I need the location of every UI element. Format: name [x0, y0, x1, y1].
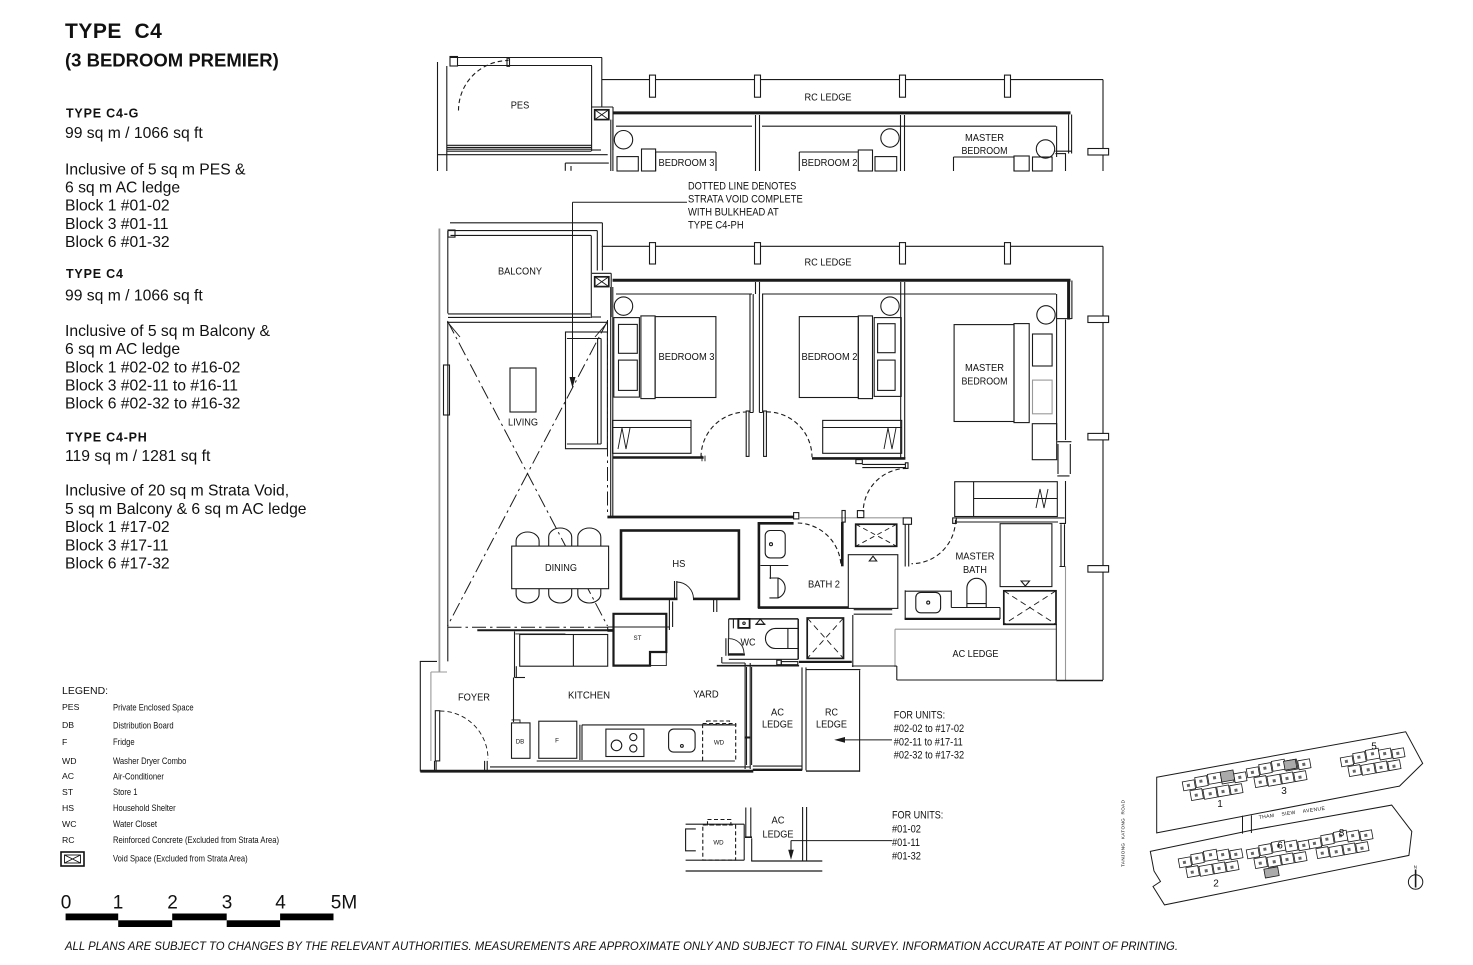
svg-text:Void Space (Excluded from Stra: Void Space (Excluded from Strata Area) [113, 854, 248, 865]
svg-text:Private Enclosed Space: Private Enclosed Space [113, 703, 194, 714]
svg-text:Inclusive of 20 sq m Strata Vo: Inclusive of 20 sq m Strata Void, [65, 483, 289, 500]
svg-text:5M: 5M [331, 893, 357, 914]
svg-text:BEDROOM: BEDROOM [962, 377, 1008, 388]
svg-text:TYPE C4: TYPE C4 [66, 267, 124, 281]
svg-text:0: 0 [61, 893, 72, 914]
svg-text:TYPE C4-PH: TYPE C4-PH [688, 220, 744, 232]
svg-text:AC: AC [62, 771, 74, 781]
svg-text:YARD: YARD [693, 690, 719, 701]
svg-text:AC LEDGE: AC LEDGE [953, 649, 999, 660]
svg-text:LEDGE: LEDGE [816, 720, 847, 731]
svg-text:#02-32 to #17-32: #02-32 to #17-32 [894, 750, 964, 762]
svg-text:Inclusive of 5 sq m PES &: Inclusive of 5 sq m PES & [65, 161, 246, 178]
svg-text:LEDGE: LEDGE [762, 720, 793, 731]
svg-text:99 sq m / 1066 sq ft: 99 sq m / 1066 sq ft [65, 288, 203, 305]
svg-text:WC: WC [741, 638, 756, 649]
svg-text:ST: ST [634, 635, 642, 642]
svg-text:WITH BULKHEAD AT: WITH BULKHEAD AT [688, 207, 779, 219]
svg-text:FOR UNITS:: FOR UNITS: [892, 810, 943, 822]
svg-text:F: F [555, 738, 559, 745]
svg-text:Fridge: Fridge [113, 737, 135, 748]
svg-text:AC: AC [772, 816, 785, 827]
svg-text:BEDROOM 3: BEDROOM 3 [659, 352, 715, 363]
svg-text:1: 1 [113, 893, 124, 914]
svg-text:MASTER: MASTER [956, 552, 995, 563]
svg-text:AC: AC [771, 708, 784, 719]
svg-text:(3 BEDROOM PREMIER): (3 BEDROOM PREMIER) [65, 50, 279, 71]
svg-text:TYPE C4: TYPE C4 [65, 20, 162, 43]
svg-text:5: 5 [1371, 742, 1377, 753]
svg-text:ST: ST [62, 787, 74, 797]
svg-text:ALL PLANS ARE SUBJECT TO CHANG: ALL PLANS ARE SUBJECT TO CHANGES BY THE … [64, 939, 1178, 953]
svg-text:1: 1 [1217, 799, 1223, 810]
svg-text:Block 6 #02-32 to #16-32: Block 6 #02-32 to #16-32 [65, 396, 240, 413]
svg-text:RC LEDGE: RC LEDGE [805, 93, 852, 104]
svg-text:DOTTED LINE DENOTES: DOTTED LINE DENOTES [688, 181, 796, 193]
svg-text:FOR UNITS:: FOR UNITS: [894, 710, 945, 722]
svg-text:TYPE C4-G: TYPE C4-G [66, 107, 139, 121]
svg-text:WC: WC [62, 819, 76, 829]
svg-text:BEDROOM 3: BEDROOM 3 [659, 158, 715, 169]
svg-text:Washer Dryer Combo: Washer Dryer Combo [113, 756, 186, 767]
svg-text:DB: DB [516, 739, 525, 746]
svg-text:PES: PES [62, 702, 80, 712]
svg-text:5 sq m Balcony & 6 sq m AC led: 5 sq m Balcony & 6 sq m AC ledge [65, 501, 307, 518]
svg-text:MASTER: MASTER [965, 133, 1004, 144]
svg-text:6 sq m AC ledge: 6 sq m AC ledge [65, 341, 180, 358]
svg-text:BEDROOM 2: BEDROOM 2 [802, 158, 858, 169]
svg-text:4: 4 [275, 893, 286, 914]
svg-text:PES: PES [511, 101, 530, 112]
svg-text:N: N [1414, 865, 1418, 870]
svg-text:Block 3 #01-11: Block 3 #01-11 [65, 216, 169, 233]
svg-text:Block 6 #01-32: Block 6 #01-32 [65, 234, 170, 251]
svg-text:#01-02: #01-02 [892, 824, 921, 836]
svg-text:Household Shelter: Household Shelter [113, 803, 176, 814]
svg-text:RC: RC [62, 835, 75, 845]
svg-text:MASTER: MASTER [965, 363, 1004, 374]
svg-text:Water Closet: Water Closet [113, 819, 157, 830]
svg-text:LEDGE: LEDGE [763, 830, 794, 841]
svg-text:KITCHEN: KITCHEN [568, 691, 610, 702]
svg-text:Block 6 #17-32: Block 6 #17-32 [65, 556, 170, 573]
svg-text:STRATA VOID COMPLETE: STRATA VOID COMPLETE [688, 194, 803, 206]
svg-text:TANJONG KATONG ROAD: TANJONG KATONG ROAD [1121, 799, 1126, 867]
svg-text:FOYER: FOYER [458, 693, 490, 704]
svg-text:DB: DB [62, 720, 74, 730]
svg-text:#02-11 to #17-11: #02-11 to #17-11 [894, 736, 963, 748]
svg-text:LIVING: LIVING [508, 418, 538, 429]
svg-text:3: 3 [1281, 786, 1287, 797]
svg-text:BEDROOM 2: BEDROOM 2 [802, 352, 858, 363]
svg-text:RC: RC [825, 708, 838, 719]
svg-text:BATH 2: BATH 2 [808, 580, 840, 591]
svg-text:WD: WD [62, 756, 76, 766]
svg-text:119 sq m / 1281 sq ft: 119 sq m / 1281 sq ft [65, 448, 211, 465]
svg-text:6 sq m AC ledge: 6 sq m AC ledge [65, 180, 180, 197]
svg-text:BEDROOM: BEDROOM [962, 146, 1008, 157]
svg-text:Inclusive of 5 sq m Balcony &: Inclusive of 5 sq m Balcony & [65, 323, 270, 340]
svg-text:WD: WD [714, 740, 725, 747]
svg-text:Reinforced Concrete (Excluded: Reinforced Concrete (Excluded from Strat… [113, 835, 279, 846]
svg-text:2: 2 [167, 893, 178, 914]
svg-text:BATH: BATH [963, 565, 987, 576]
svg-text:#01-32: #01-32 [892, 851, 921, 863]
svg-text:Store 1: Store 1 [113, 787, 138, 798]
svg-text:99 sq m / 1066 sq ft: 99 sq m / 1066 sq ft [65, 125, 203, 142]
svg-text:Block 1 #02-02 to #16-02: Block 1 #02-02 to #16-02 [65, 359, 240, 376]
svg-text:2: 2 [1213, 879, 1219, 890]
svg-text:8: 8 [1339, 828, 1345, 839]
svg-text:#01-11: #01-11 [892, 837, 920, 849]
svg-text:Block 3 #17-11: Block 3 #17-11 [65, 537, 169, 554]
svg-text:Block 3 #02-11 to #16-11: Block 3 #02-11 to #16-11 [65, 378, 238, 395]
svg-text:#02-02 to #17-02: #02-02 to #17-02 [894, 723, 964, 735]
svg-text:F: F [62, 737, 67, 747]
svg-text:WD: WD [713, 840, 724, 847]
svg-text:TYPE C4-PH: TYPE C4-PH [66, 431, 148, 445]
svg-text:3: 3 [222, 893, 233, 914]
svg-text:Block 1 #01-02: Block 1 #01-02 [65, 198, 170, 215]
svg-text:Air-Conditioner: Air-Conditioner [113, 772, 164, 783]
svg-text:HS: HS [672, 559, 685, 570]
svg-text:6: 6 [1277, 841, 1283, 852]
svg-text:BALCONY: BALCONY [498, 267, 542, 278]
svg-text:DINING: DINING [545, 563, 577, 574]
svg-text:HS: HS [62, 803, 74, 813]
svg-text:LEGEND:: LEGEND: [62, 685, 108, 697]
svg-text:RC LEDGE: RC LEDGE [805, 258, 852, 269]
svg-text:Block 1 #17-02: Block 1 #17-02 [65, 519, 170, 536]
svg-text:Distribution Board: Distribution Board [113, 720, 174, 731]
